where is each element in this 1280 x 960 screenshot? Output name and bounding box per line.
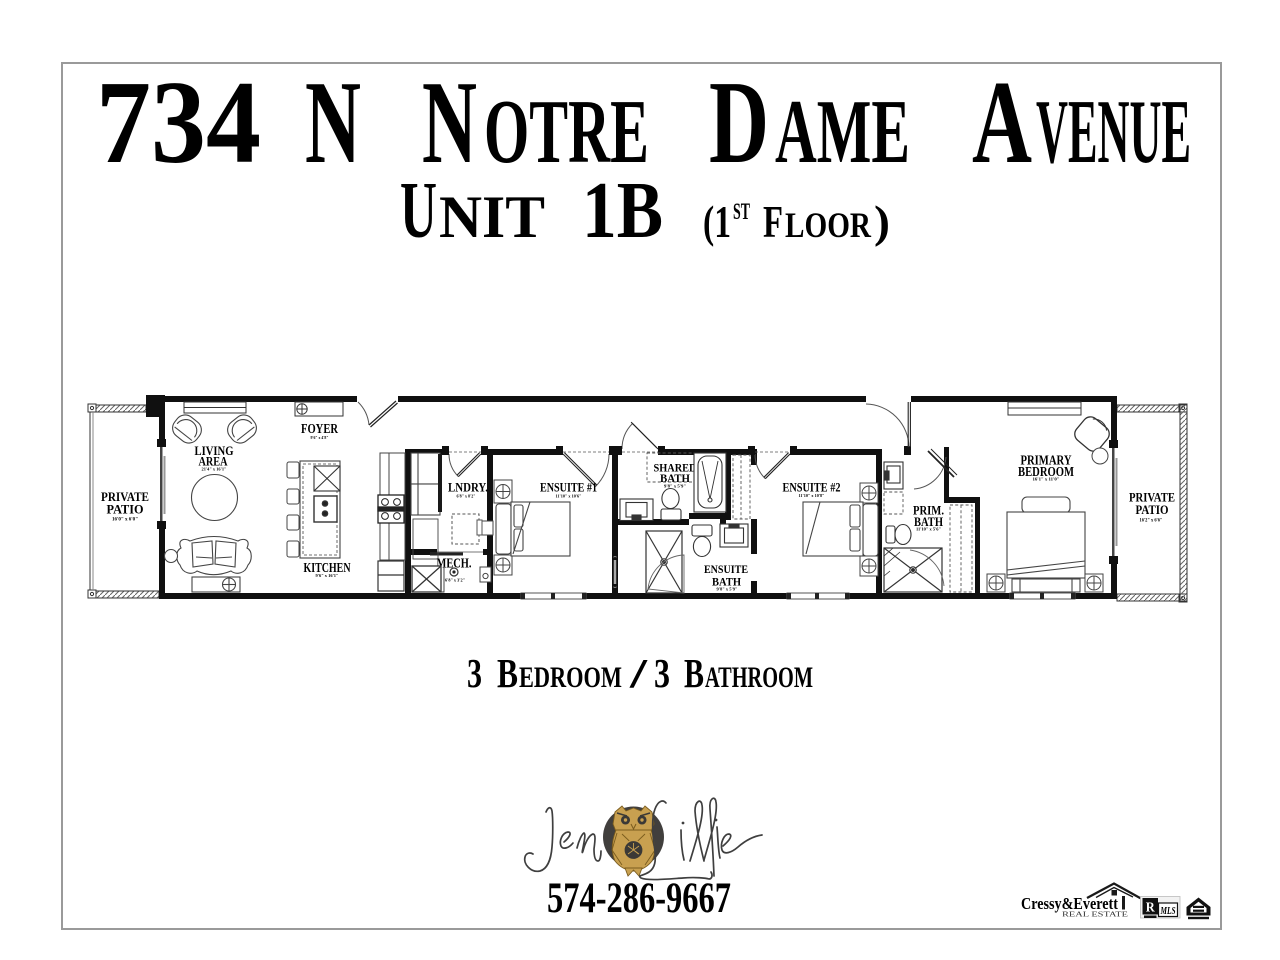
svg-text:9'6" x 16'1": 9'6" x 16'1" (316, 573, 339, 578)
svg-text:PATIO: PATIO (1136, 502, 1169, 517)
svg-text:VENUE: VENUE (1036, 81, 1191, 182)
svg-text:(1: (1 (703, 197, 731, 247)
svg-text:3: 3 (467, 650, 482, 696)
svg-text:734: 734 (96, 56, 261, 188)
svg-text:9'6" x 4'8": 9'6" x 4'8" (311, 435, 329, 440)
svg-text:EDROOM: EDROOM (519, 661, 622, 694)
svg-text:16'0" x 6'0": 16'0" x 6'0" (112, 518, 138, 523)
svg-text:LOOR: LOOR (785, 205, 872, 245)
svg-text:16'1" x 11'0": 16'1" x 11'0" (1033, 477, 1060, 482)
svg-text:LNDRY.: LNDRY. (448, 480, 488, 495)
svg-text:R: R (1146, 901, 1156, 916)
svg-text:9'8" x 5'9": 9'8" x 5'9" (717, 587, 738, 592)
svg-text:NIT: NIT (439, 184, 545, 250)
svg-text:ST: ST (733, 199, 750, 224)
svg-text:PATIO: PATIO (107, 502, 144, 517)
svg-text:F: F (763, 197, 783, 247)
svg-text:U: U (400, 165, 437, 255)
svg-text:D: D (709, 56, 769, 188)
svg-text:1B: 1B (582, 165, 663, 255)
svg-text:16'2" x 6'6": 16'2" x 6'6" (1140, 519, 1163, 524)
svg-text:21'4" x 16'1": 21'4" x 16'1" (202, 467, 227, 472)
svg-text:N: N (305, 56, 361, 188)
svg-text:A: A (972, 56, 1032, 188)
svg-text:REAL ESTATE: REAL ESTATE (1062, 910, 1129, 919)
svg-text:ATHROOM: ATHROOM (705, 661, 813, 694)
svg-text:MLS: MLS (1160, 906, 1176, 917)
svg-text:11'10" x 10'8": 11'10" x 10'8" (799, 493, 825, 498)
svg-text:): ) (874, 197, 890, 247)
svg-text:AME: AME (775, 81, 910, 182)
svg-text:/: / (629, 650, 648, 696)
svg-text:11'10" x 5'6": 11'10" x 5'6" (916, 526, 941, 531)
svg-text:574-286-9667: 574-286-9667 (547, 875, 731, 922)
svg-text:6'8" x 3'2": 6'8" x 3'2" (445, 578, 465, 583)
svg-text:11'10" x 10'6": 11'10" x 10'6" (556, 493, 582, 498)
svg-text:3: 3 (654, 650, 670, 696)
svg-text:9'8" x 5'9": 9'8" x 5'9" (664, 484, 686, 489)
svg-text:B: B (684, 650, 704, 696)
svg-text:6'8" x 8'2": 6'8" x 8'2" (457, 494, 476, 499)
svg-text:B: B (497, 650, 518, 696)
